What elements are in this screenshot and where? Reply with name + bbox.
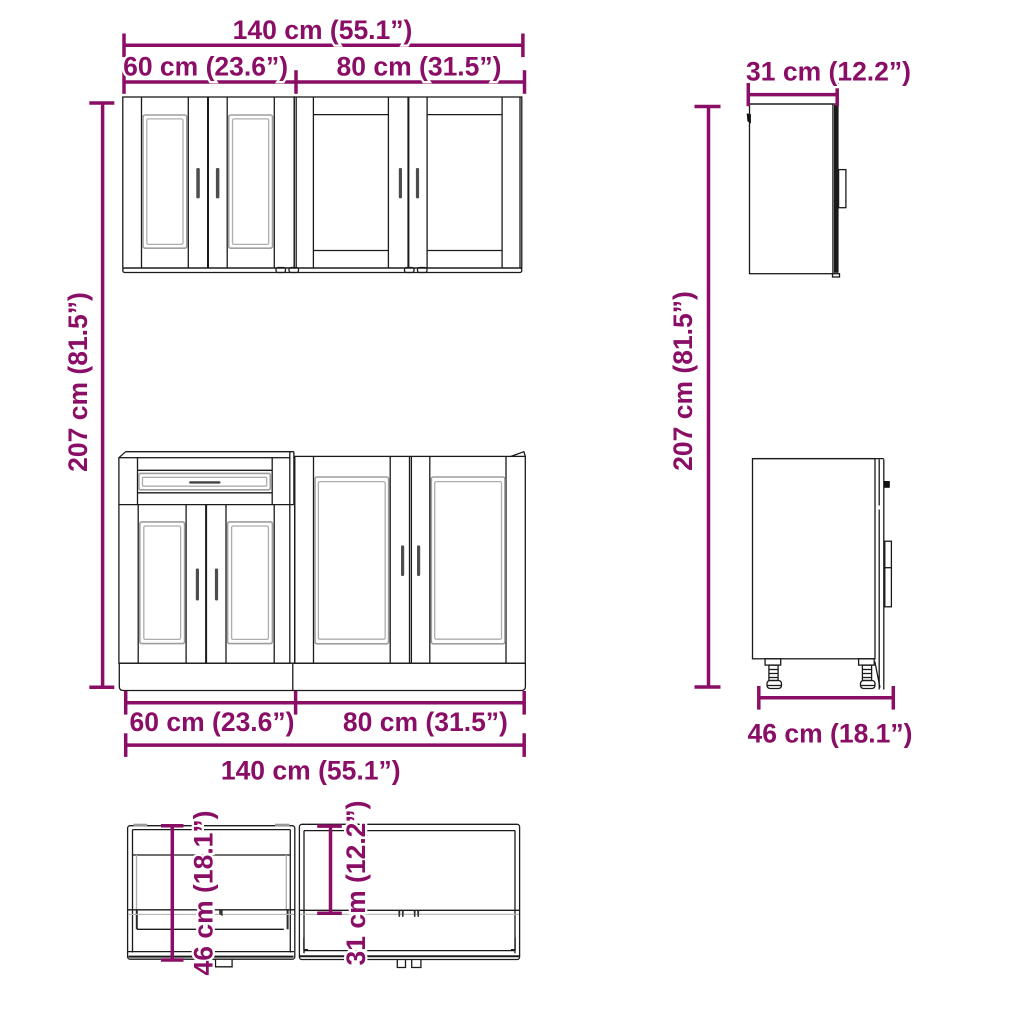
- svg-text:80 cm (31.5”): 80 cm (31.5”): [337, 52, 502, 82]
- svg-text:140 cm (55.1”): 140 cm (55.1”): [233, 15, 413, 45]
- svg-text:31 cm (12.2”): 31 cm (12.2”): [341, 801, 371, 966]
- svg-text:46 cm (18.1”): 46 cm (18.1”): [189, 811, 219, 976]
- svg-text:31 cm (12.2”): 31 cm (12.2”): [746, 57, 911, 87]
- svg-text:207 cm (81.5”): 207 cm (81.5”): [668, 291, 698, 471]
- svg-text:80 cm (31.5”): 80 cm (31.5”): [343, 707, 508, 737]
- svg-text:207 cm (81.5”): 207 cm (81.5”): [63, 292, 93, 472]
- svg-text:60 cm (23.6”): 60 cm (23.6”): [130, 707, 295, 737]
- svg-text:46 cm (18.1”): 46 cm (18.1”): [748, 718, 913, 748]
- svg-text:60 cm (23.6”): 60 cm (23.6”): [123, 52, 288, 82]
- svg-text:140 cm (55.1”): 140 cm (55.1”): [221, 756, 401, 786]
